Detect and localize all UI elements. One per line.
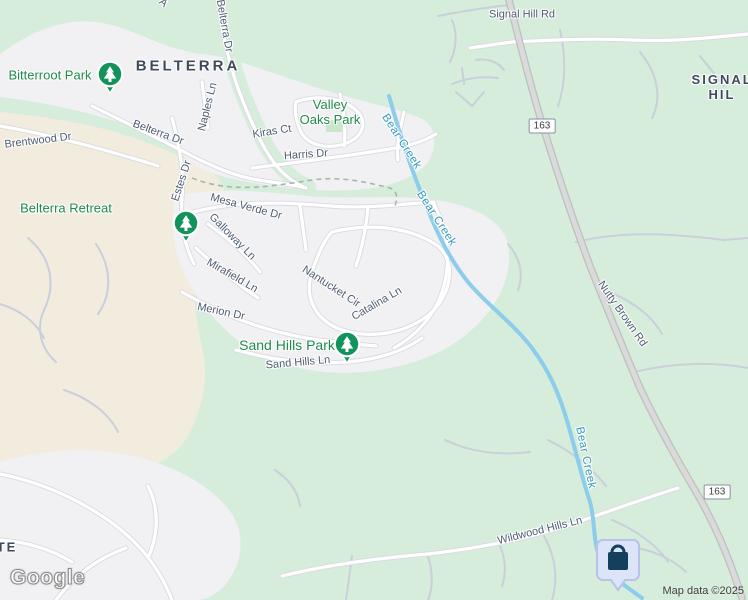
tree-icon — [171, 208, 201, 246]
route-badge-163-north: 163 — [529, 119, 556, 134]
map-attribution: Map data ©2025 — [663, 585, 745, 597]
tree-icon — [332, 329, 362, 367]
poi-marker-shopping[interactable] — [595, 538, 641, 592]
park-marker-sand-hills-park[interactable] — [332, 329, 362, 367]
google-logo[interactable]: Google — [10, 566, 85, 590]
shopping-bag-icon — [595, 538, 641, 592]
tree-icon — [95, 59, 125, 97]
map-viewport: Signal Hill RdNutty Brown RdBelterra DrA… — [0, 0, 748, 600]
route-badge-163-south: 163 — [704, 485, 731, 500]
park-marker-bitterroot-park[interactable] — [95, 59, 125, 97]
park-marker-belterra-retreat[interactable] — [171, 208, 201, 246]
